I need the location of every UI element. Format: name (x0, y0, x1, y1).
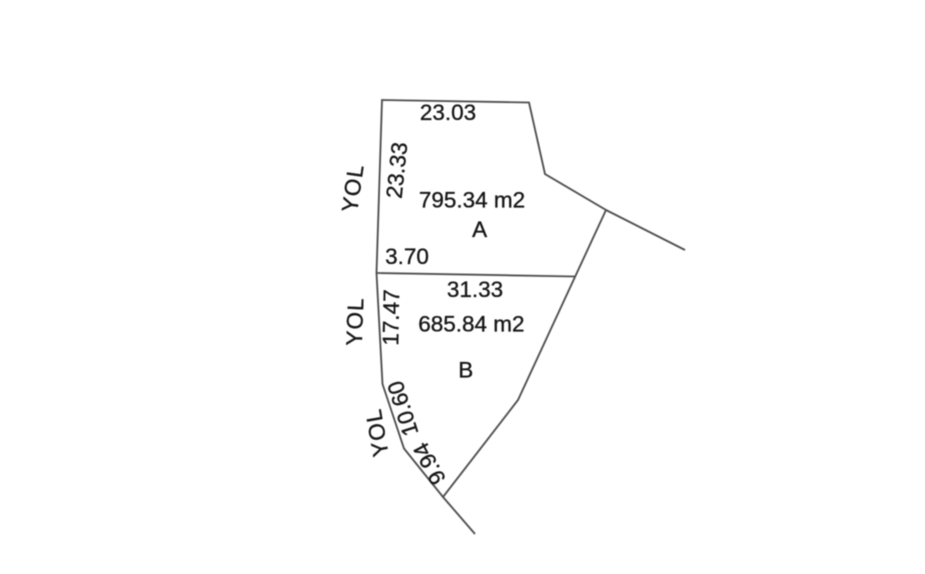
svg-text:YOL: YOL (342, 297, 369, 346)
svg-text:31.33: 31.33 (447, 277, 503, 302)
svg-text:A: A (472, 217, 487, 242)
svg-text:23.03: 23.03 (420, 100, 476, 125)
svg-text:3.70: 3.70 (385, 244, 429, 269)
svg-text:795.34 m2: 795.34 m2 (419, 188, 525, 213)
svg-text:685.84 m2: 685.84 m2 (418, 312, 524, 337)
svg-text:17.47: 17.47 (378, 289, 404, 346)
svg-text:B: B (458, 358, 473, 383)
